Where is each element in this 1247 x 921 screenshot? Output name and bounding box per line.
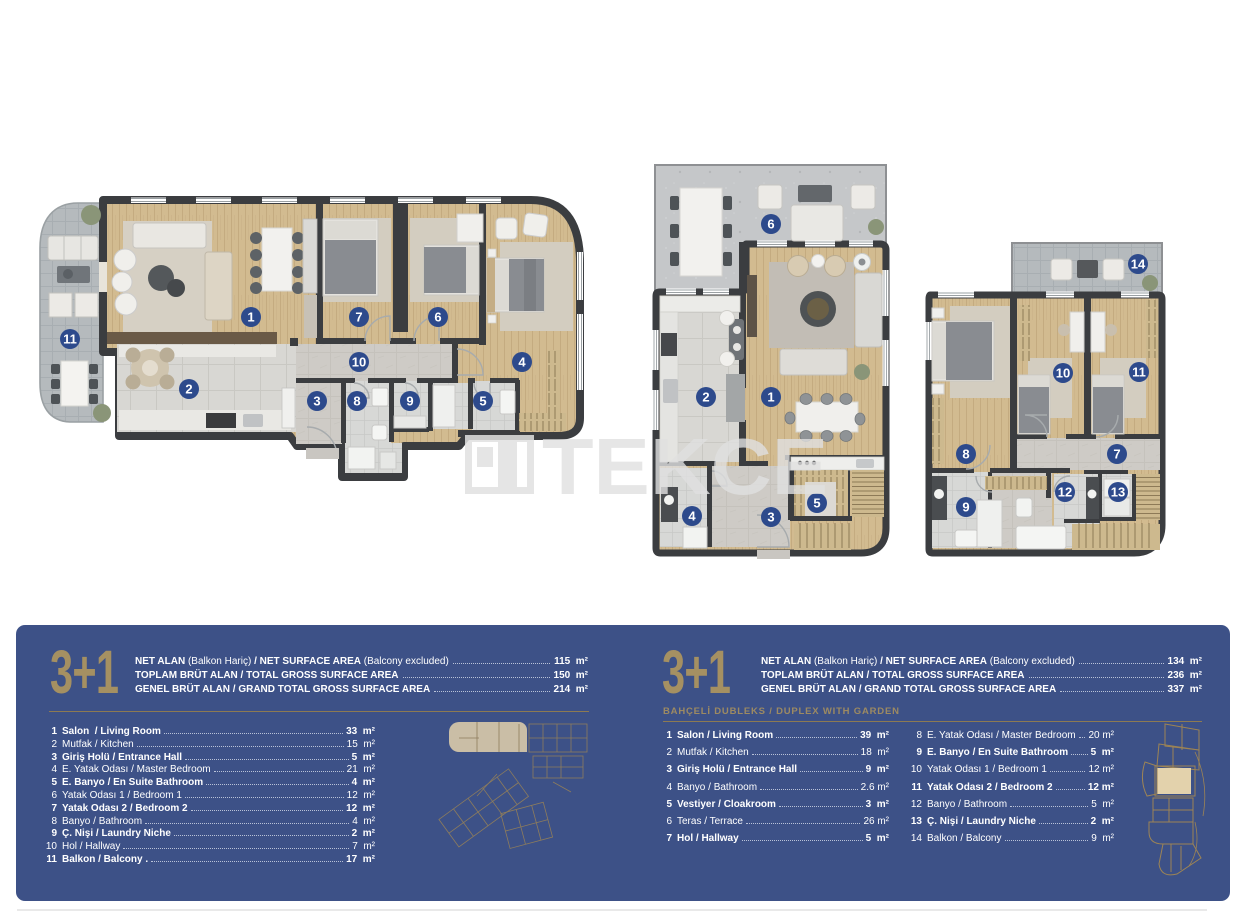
svg-text:3: 3 [313, 394, 320, 409]
svg-text:7: 7 [1113, 447, 1120, 462]
svg-text:6: 6 [434, 310, 441, 325]
svg-text:6: 6 [767, 217, 774, 232]
svg-text:7: 7 [355, 310, 362, 325]
svg-text:2: 2 [185, 382, 192, 397]
svg-text:14: 14 [1131, 257, 1146, 272]
svg-text:3: 3 [767, 510, 774, 525]
svg-text:9: 9 [962, 500, 969, 515]
svg-text:1: 1 [767, 390, 774, 405]
svg-text:8: 8 [962, 447, 969, 462]
svg-text:TEKCE: TEKCE [542, 422, 828, 511]
svg-text:8: 8 [353, 394, 360, 409]
svg-text:11: 11 [1132, 365, 1146, 380]
svg-text:2: 2 [702, 390, 709, 405]
svg-text:13: 13 [1111, 485, 1125, 500]
svg-text:10: 10 [1056, 366, 1070, 381]
svg-text:11: 11 [63, 332, 77, 347]
svg-text:4: 4 [518, 355, 526, 370]
svg-text:1: 1 [247, 310, 254, 325]
svg-text:12: 12 [1058, 485, 1072, 500]
svg-text:9: 9 [406, 394, 413, 409]
svg-text:10: 10 [352, 355, 366, 370]
svg-text:5: 5 [479, 394, 486, 409]
